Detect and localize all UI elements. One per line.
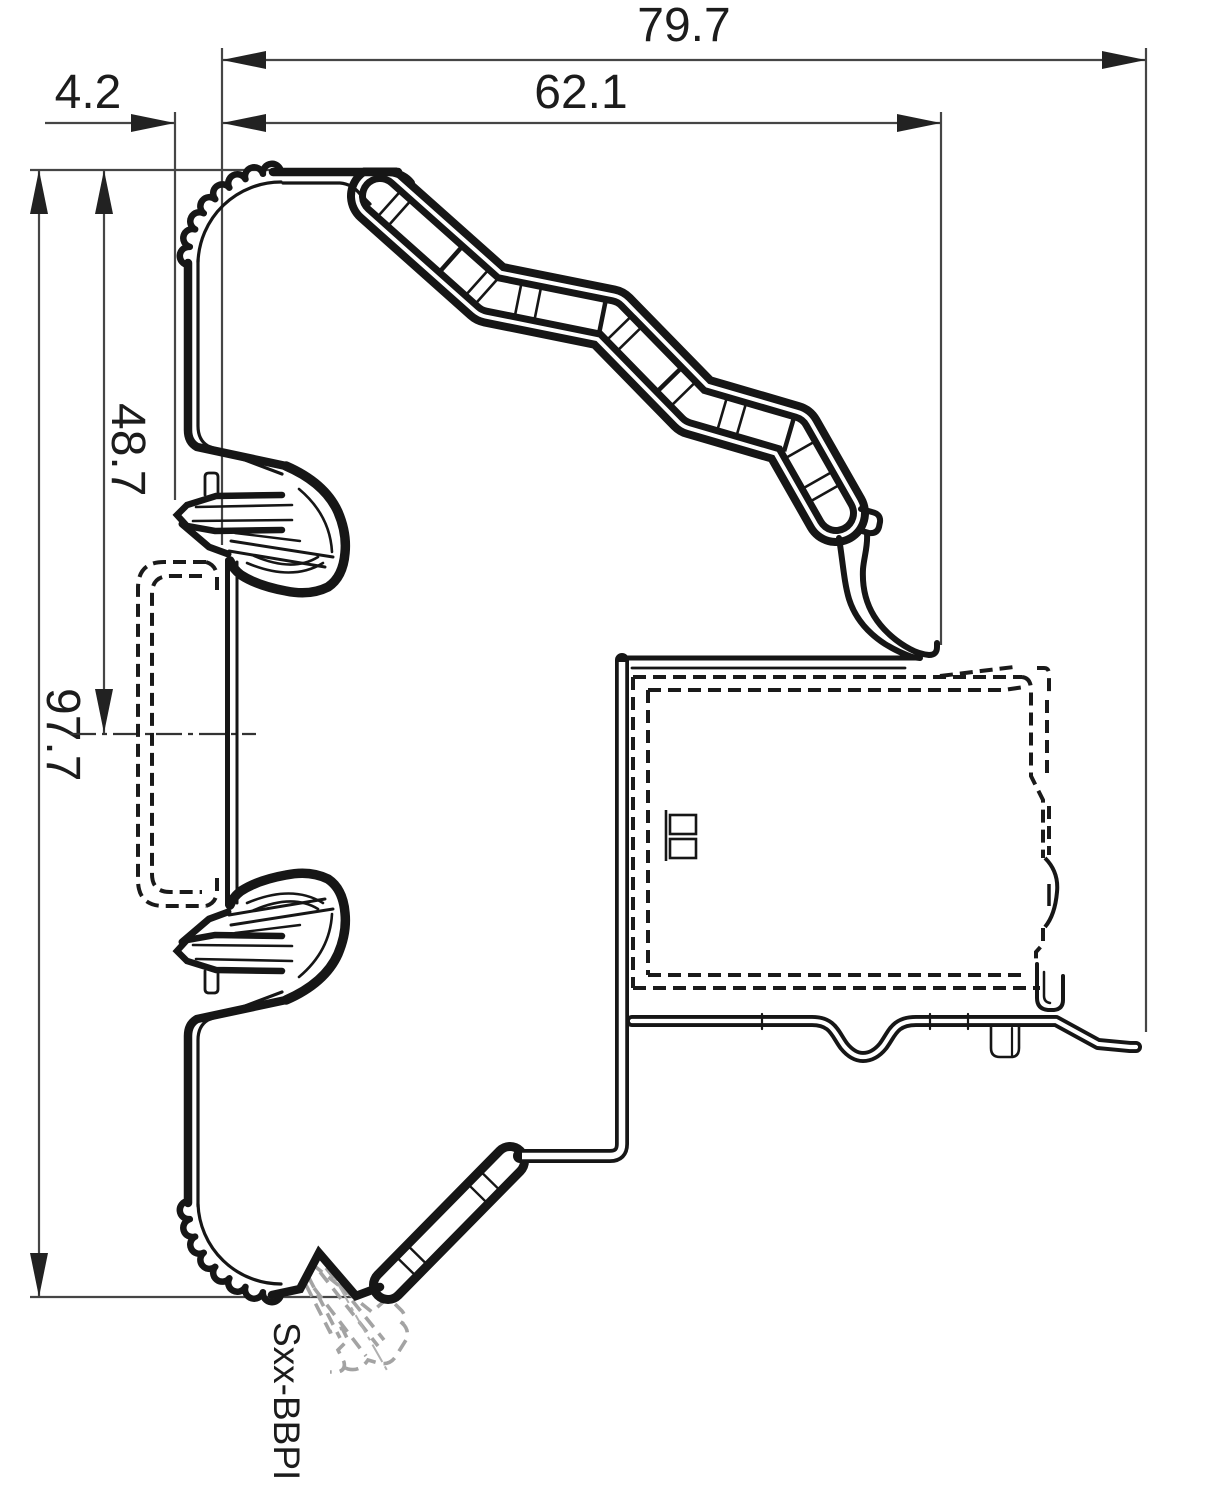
svg-text:79.7: 79.7 — [637, 0, 730, 52]
svg-text:48.7: 48.7 — [101, 403, 154, 496]
svg-text:62.1: 62.1 — [534, 66, 627, 119]
svg-text:Sxx-BBPI: Sxx-BBPI — [266, 1322, 307, 1480]
svg-text:4.2: 4.2 — [55, 66, 122, 119]
